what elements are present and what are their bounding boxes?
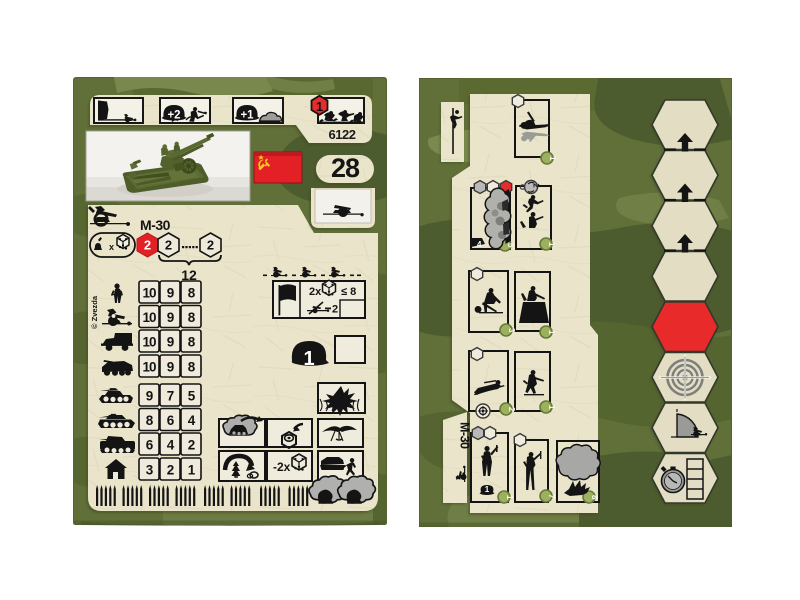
svg-text:28: 28 <box>331 153 360 183</box>
svg-text:1: 1 <box>548 156 558 161</box>
svg-text:-2x: -2x <box>273 460 291 474</box>
svg-text:+2: +2 <box>167 110 180 122</box>
svg-text:2: 2 <box>332 304 338 316</box>
svg-text:1: 1 <box>547 330 557 335</box>
svg-text:6122: 6122 <box>329 127 356 142</box>
svg-text:2: 2 <box>207 238 214 253</box>
svg-text:2: 2 <box>532 183 541 188</box>
svg-text:2: 2 <box>167 463 174 478</box>
svg-text:© Zvezda: © Zvezda <box>90 295 99 329</box>
svg-text:x: x <box>109 242 114 252</box>
svg-text:9: 9 <box>167 286 174 301</box>
svg-text:2: 2 <box>188 438 195 453</box>
svg-text:1: 1 <box>316 99 323 114</box>
svg-text:+1: +1 <box>240 110 254 122</box>
svg-text:M-30: M-30 <box>458 422 472 449</box>
svg-text:9: 9 <box>146 389 153 404</box>
svg-text:4: 4 <box>477 240 482 249</box>
svg-text:1: 1 <box>547 242 557 247</box>
svg-text:1: 1 <box>485 485 490 494</box>
svg-text:7: 7 <box>167 389 174 404</box>
svg-text:10: 10 <box>142 286 156 301</box>
svg-text:1: 1 <box>303 348 314 370</box>
svg-text:M-30: M-30 <box>140 217 171 233</box>
svg-text:10: 10 <box>142 360 156 375</box>
svg-text:8: 8 <box>590 495 600 500</box>
svg-text:9: 9 <box>167 310 174 325</box>
svg-text:5: 5 <box>506 243 516 248</box>
svg-text:3: 3 <box>507 328 517 333</box>
svg-text:9: 9 <box>167 335 174 350</box>
svg-text:10: 10 <box>142 310 156 325</box>
svg-text:10: 10 <box>142 335 156 350</box>
svg-text:2: 2 <box>507 407 517 412</box>
svg-text:9: 9 <box>167 360 174 375</box>
svg-text:2: 2 <box>144 238 151 253</box>
svg-text:1: 1 <box>505 495 515 500</box>
svg-text:1: 1 <box>547 405 557 410</box>
svg-text:2: 2 <box>165 238 172 253</box>
svg-text:2x: 2x <box>309 286 322 298</box>
svg-text:≤ 8: ≤ 8 <box>341 286 356 298</box>
svg-text:7: 7 <box>547 494 557 499</box>
